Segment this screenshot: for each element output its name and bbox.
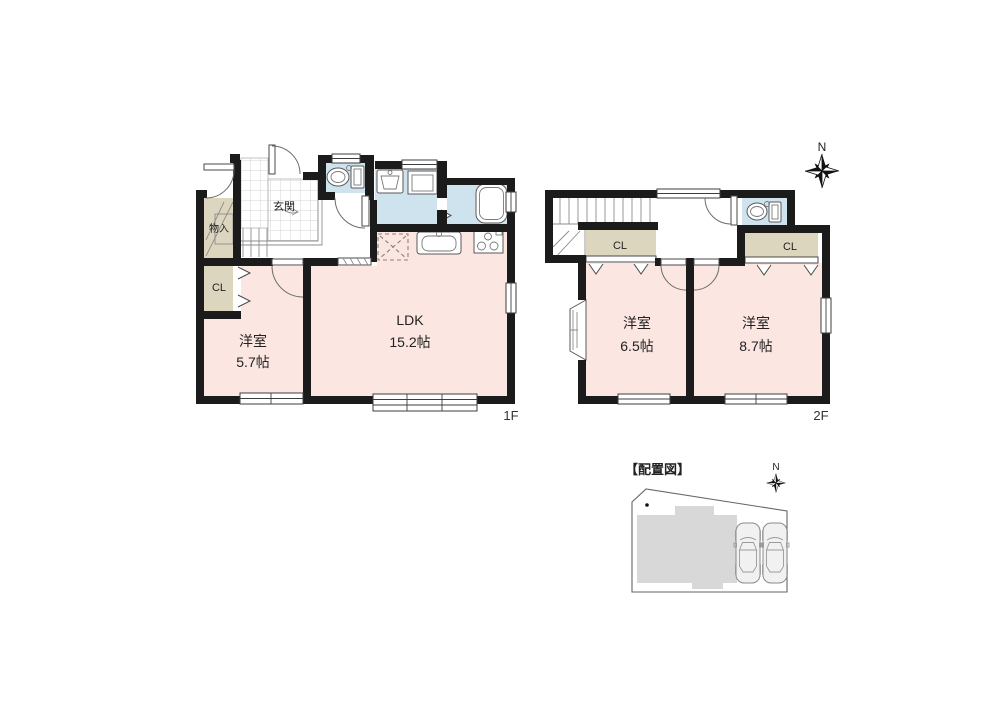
window <box>657 189 720 198</box>
compass-site: N <box>767 462 786 492</box>
closet-label-1f: CL <box>212 282 226 294</box>
window <box>821 298 831 333</box>
storage-label: 物入 <box>209 222 229 235</box>
bay-window <box>570 300 586 360</box>
closet-2f-right <box>745 233 818 257</box>
porch-door <box>204 164 234 198</box>
entrance-label: 玄関 <box>273 199 295 213</box>
washbasin-icon <box>377 170 403 193</box>
building-footprint <box>637 506 737 589</box>
kitchen-sink-icon <box>417 232 461 255</box>
closet-label-2f-left: CL <box>613 240 627 252</box>
site-marker-dot <box>645 503 649 507</box>
floor1-label: 1F <box>503 408 518 423</box>
bathtub-icon <box>476 184 507 223</box>
bedroom-2f-right-size: 8.7帖 <box>739 338 772 354</box>
toilet-door-2f <box>705 196 737 225</box>
bedroom-2f-right-name: 洋室 <box>742 315 770 331</box>
north-label: N <box>818 140 827 154</box>
washing-machine-icon <box>408 171 437 194</box>
window-sliding-large <box>373 394 477 411</box>
stove-icon <box>474 230 503 253</box>
north-label: N <box>772 462 779 473</box>
bedroom-1f-size: 5.7帖 <box>236 354 269 370</box>
closet-track <box>745 257 818 263</box>
window <box>506 192 516 212</box>
toilet-door-1f <box>335 196 369 228</box>
ldk-name: LDK <box>396 312 424 328</box>
sliding-door-ldk <box>338 258 371 265</box>
porch-tiles <box>241 158 268 228</box>
window <box>506 283 516 313</box>
bedroom-2f-left-name: 洋室 <box>623 315 651 331</box>
bedroom-2f-left-size: 6.5帖 <box>620 338 653 354</box>
floorplan-page: 玄関 物入 CL 洋室 5.7帖 LDK 15.2帖 1F <box>0 0 1000 706</box>
closet-label-2f-right: CL <box>783 241 797 253</box>
entrance-door <box>269 145 300 174</box>
window <box>402 160 437 169</box>
window <box>332 154 360 163</box>
bedroom-1f-name: 洋室 <box>239 333 267 349</box>
floorplan-drawing: 玄関 物入 CL 洋室 5.7帖 LDK 15.2帖 1F <box>0 0 1000 706</box>
site-plan-title: 【配置図】 <box>625 462 690 477</box>
window <box>618 394 670 404</box>
site-plan: 【配置図】 N <box>625 462 789 592</box>
compass-2f: N <box>805 140 839 188</box>
window <box>725 394 787 404</box>
floor2-label: 2F <box>813 408 828 423</box>
closet-track <box>586 256 656 262</box>
window <box>240 393 303 404</box>
floor1-plan: 玄関 物入 CL 洋室 5.7帖 LDK 15.2帖 1F <box>196 145 519 423</box>
floor2-plan: CL CL 洋室 6.5帖 洋室 8.7帖 2F N <box>545 140 839 423</box>
ldk-size: 15.2帖 <box>389 334 430 350</box>
